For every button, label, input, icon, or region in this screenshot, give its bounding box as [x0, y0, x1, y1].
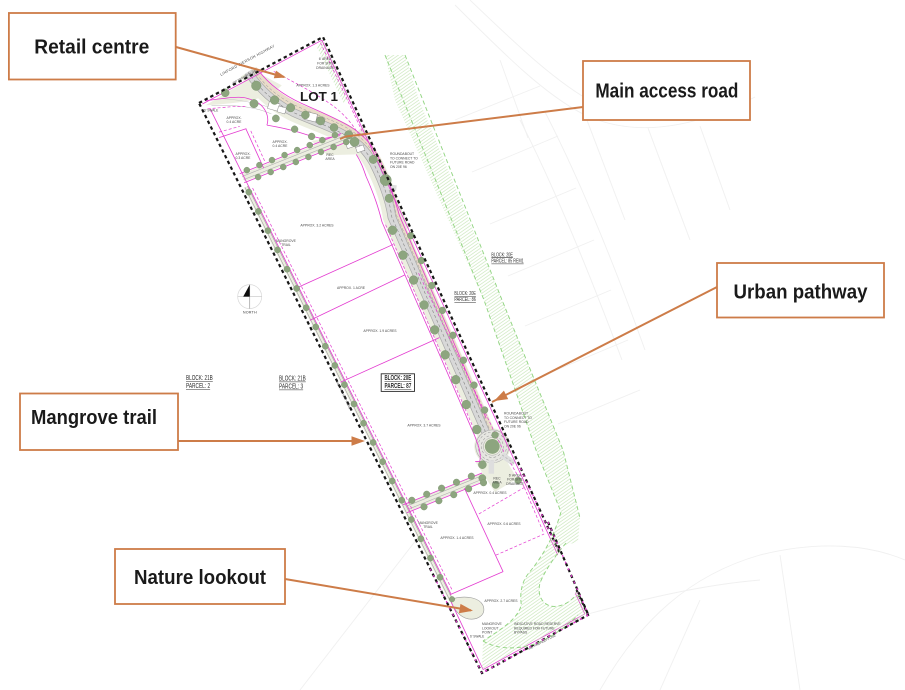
svg-text:LOT 1: LOT 1 — [300, 89, 338, 104]
svg-text:AREA: AREA — [492, 481, 502, 485]
svg-text:PARCEL: 2: PARCEL: 2 — [186, 383, 210, 390]
svg-text:TRAIL: TRAIL — [281, 243, 291, 247]
svg-text:Main access road: Main access road — [595, 80, 738, 103]
svg-text:6' AREA: 6' AREA — [319, 57, 332, 61]
svg-text:PARCEL: 87: PARCEL: 87 — [385, 383, 412, 390]
svg-text:Nature lookout: Nature lookout — [134, 566, 266, 589]
svg-text:BYPASS: BYPASS — [514, 631, 528, 635]
svg-text:PARCEL: 3: PARCEL: 3 — [279, 384, 303, 391]
svg-text:APPROX. 2.7 ACRES: APPROX. 2.7 ACRES — [484, 599, 518, 603]
svg-text:6' SWALE: 6' SWALE — [204, 109, 218, 113]
svg-text:Retail centre: Retail centre — [34, 36, 149, 59]
svg-text:BLOCK: 20E: BLOCK: 20E — [385, 375, 412, 382]
svg-text:NORTH: NORTH — [243, 311, 257, 315]
svg-text:ON 20E 96: ON 20E 96 — [390, 165, 407, 169]
svg-text:PARCEL: 85 REM1: PARCEL: 85 REM1 — [491, 259, 523, 265]
svg-text:BLOCK: 21B: BLOCK: 21B — [279, 376, 306, 383]
svg-text:APPROX. 0.6 ACRES: APPROX. 0.6 ACRES — [487, 522, 521, 526]
svg-text:APPROX. 3.7 ACRES: APPROX. 3.7 ACRES — [407, 424, 441, 428]
svg-text:Mangrove trail: Mangrove trail — [31, 406, 157, 429]
svg-text:APPROX. 1.4 ACRES: APPROX. 1.4 ACRES — [440, 536, 474, 540]
svg-text:APPROX. 3.2 ACRES: APPROX. 3.2 ACRES — [300, 224, 334, 228]
svg-text:0.3 ACRE: 0.3 ACRE — [236, 156, 252, 160]
svg-text:ON 20E 96: ON 20E 96 — [504, 424, 521, 428]
svg-text:AREA: AREA — [325, 157, 335, 161]
svg-text:DRAINAGE: DRAINAGE — [316, 66, 334, 70]
svg-text:0.4 ACRE: 0.4 ACRE — [227, 120, 243, 124]
svg-text:APPROX. 1.9 ACRES: APPROX. 1.9 ACRES — [363, 329, 397, 333]
svg-text:PARCEL: 86: PARCEL: 86 — [454, 297, 476, 303]
svg-text:DRAINAGE: DRAINAGE — [506, 482, 524, 486]
svg-text:TRAIL: TRAIL — [423, 525, 433, 529]
svg-text:BLOCK: 20E: BLOCK: 20E — [454, 291, 476, 297]
svg-text:BLOCK: 20E: BLOCK: 20E — [491, 252, 513, 258]
svg-text:FOR SITE: FOR SITE — [317, 61, 333, 65]
svg-text:6' SWALE: 6' SWALE — [470, 635, 484, 639]
svg-text:APPROX. 1.3 ACRES: APPROX. 1.3 ACRES — [296, 84, 330, 88]
svg-text:BLOCK: 21B: BLOCK: 21B — [186, 375, 213, 382]
svg-text:APPROX. 0.4 ACRES: APPROX. 0.4 ACRES — [473, 491, 507, 495]
svg-text:Urban pathway: Urban pathway — [734, 280, 869, 303]
svg-text:0.4 ACRE: 0.4 ACRE — [273, 144, 289, 148]
svg-text:APPROX. 1 ACRE: APPROX. 1 ACRE — [337, 286, 366, 290]
